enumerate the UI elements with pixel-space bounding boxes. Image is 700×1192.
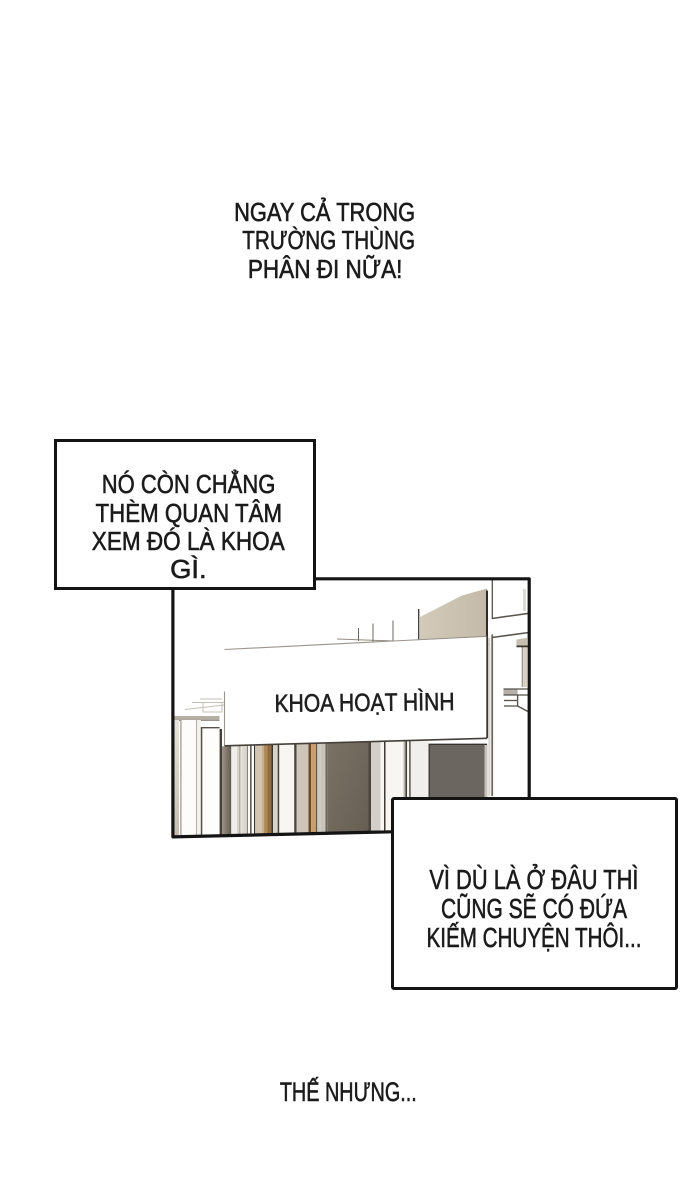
svg-text:KHOA HOẠT HÌNH: KHOA HOẠT HÌNH [274, 687, 454, 718]
